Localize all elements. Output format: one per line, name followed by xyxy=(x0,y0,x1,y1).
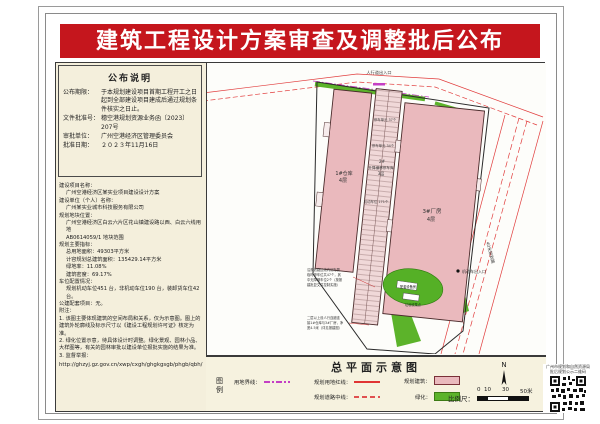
facility-2-label: 垃圾收集点 xyxy=(405,302,422,307)
compass-needle-icon xyxy=(499,369,509,387)
scale-label: 比例尺： xyxy=(448,393,474,403)
annotation-b-line1: 二层以上设人行连廊连 xyxy=(307,315,341,320)
qr-code-icon xyxy=(549,375,587,413)
info-location-value1: 广州空港经济区白云六片区花山镇建设路以西、白云六线用地 xyxy=(59,220,204,235)
info-public-label: 公建配套项目：无。 xyxy=(59,301,204,308)
notice-box: 公布说明 公布期限： 于本规划建设项目首期工程开工之日起到全部建设项目建成后通过… xyxy=(58,65,202,177)
info-ind4: 建筑密度：69.17% xyxy=(59,272,204,279)
content-area: 公布说明 公布期限： 于本规划建设项目首期工程开工之日起到全部建设项目建成后通过… xyxy=(55,62,545,412)
pedestrian-entrance-marker xyxy=(373,83,385,86)
annotation-a-line2: 临时停车位共47个，其 xyxy=(307,272,342,277)
notice-item-value: ２０２３年11月16日 xyxy=(101,142,197,150)
legend-item-boundary-label: 用地界线： xyxy=(234,378,261,386)
annotation-b-line3: 宽4.5米（详见报建图） xyxy=(307,325,342,330)
supervision-url: http://ghzyj.gz.gov.cn/xwp/cxgh/ghgkgsgb… xyxy=(59,362,204,370)
info-parking-value: 规划机动车位451 台，非机动车位190 台，装卸货车位42 台。 xyxy=(59,286,204,301)
notice-item-value: 穗空港规划资源业务函〔2023〕207号 xyxy=(101,115,197,132)
building-2-label: 升降横移停车库 xyxy=(368,165,394,170)
legend-item-green-label: 绿化： xyxy=(415,393,431,401)
legend-item-roadcenter: 规划道路中线： xyxy=(314,393,380,401)
north-letter: N xyxy=(494,361,514,369)
legend-key-char1: 图 xyxy=(216,377,223,386)
building-1-floors: 4层 xyxy=(339,178,347,184)
info-name-value: 广州空港经济区某实业项目建设设计方案 xyxy=(59,190,204,197)
site-plan-map: 配套设备房 垃圾收集点 人行道出入口 机动车出入口 1#仓库 4层 2# 升降横… xyxy=(206,63,546,356)
notice-item-value: 广州空港经济区管理委员会 xyxy=(101,133,197,141)
vehicle-entrance-marker xyxy=(456,269,459,272)
info-ind1: 总用地面积：49303平方米 xyxy=(59,249,204,256)
legend-item-roadcenter-label: 规划道路中线： xyxy=(314,393,351,401)
scale-tick-10: 10 xyxy=(484,387,491,393)
parking-count-1: 停车单元 37个 xyxy=(374,117,397,122)
legend-key-label: 图 例 xyxy=(216,377,223,395)
parking-count-2: 停车单元 34个 xyxy=(372,143,395,148)
page-title: 建筑工程设计方案审查及调整批后公布 xyxy=(60,24,540,58)
site-plan-svg: 配套设备房 垃圾收集点 人行道出入口 机动车出入口 1#仓库 4层 2# 升降横… xyxy=(207,63,545,354)
boundary-line-swatch xyxy=(264,381,290,383)
legend-key-char2: 例 xyxy=(216,386,223,395)
scale-tick-50: 50米 xyxy=(520,387,533,395)
stair-core xyxy=(395,140,401,152)
annotation-a-line3: 中无障碍车位2个（按报 xyxy=(307,277,343,282)
info-note3: 3. 监督举报： xyxy=(59,353,204,360)
qr-block: 广州市规划和自然资源局 批后规划公示二维码 xyxy=(543,364,593,413)
scale-segments xyxy=(477,396,529,401)
info-note1: 1. 该图主要体现建筑的空间布局和关系，仅为示意图。图上的建筑外轮廓线及标示尺寸… xyxy=(59,316,204,338)
building-2-floors: 3层 xyxy=(378,170,385,176)
qr-caption-line2: 批后规划公示二维码 xyxy=(543,369,593,374)
facility-1-label: 配套设备房 xyxy=(400,284,416,289)
pedestrian-entrance-label: 人行道出入口 xyxy=(366,69,391,76)
annotation-b-line2: 接1#仓库与3#厂房，净 xyxy=(307,320,344,325)
vehicle-entrance-label: 机动车出入口 xyxy=(462,268,486,274)
legend-item-boundary: 用地界线： xyxy=(234,378,290,386)
scale-bar: 比例尺： 0 10 30 50米 xyxy=(448,387,533,403)
info-location-value2: AB0614059/1 地块范围 xyxy=(59,235,204,242)
building-3-floors: 4层 xyxy=(427,217,435,223)
building-swatch xyxy=(434,376,460,385)
annotation-a-line4: 建批复文件控制实施） xyxy=(307,282,340,287)
project-info: 建设项目名称： 广州空港经济区某实业项目建设设计方案 建设单位（个人）名称： 广… xyxy=(59,183,204,370)
notice-heading: 公布说明 xyxy=(63,71,197,84)
redline-swatch xyxy=(354,381,380,383)
notice-item: 文件批准号： 穗空港规划资源业务函〔2023〕207号 xyxy=(63,115,197,132)
scale-tick-0: 0 xyxy=(477,387,481,393)
notice-item-label: 公布期限： xyxy=(63,89,101,114)
annotation-a-line1: 沿规划路边线内侧布置 xyxy=(307,267,341,272)
info-location-label: 规划地块位置： xyxy=(59,213,204,220)
info-unit-value: 广州某实业城市科技服务有限公司 xyxy=(59,205,204,212)
building-3-label: 3#厂房 xyxy=(422,207,442,215)
building-2-number: 2# xyxy=(379,159,386,164)
legend-item-building: 规划建筑： xyxy=(404,376,460,385)
legend-item-redline: 规划用地红线： xyxy=(314,378,380,386)
info-ind3: 绿地率：11.08% xyxy=(59,264,204,271)
legend-item-redline-label: 规划用地红线： xyxy=(314,378,351,386)
notice-item: 审批单位： 广州空港经济区管理委员会 xyxy=(63,133,197,141)
scale-ruler: 0 10 30 50米 xyxy=(477,387,533,403)
building-1-label: 1#仓库 xyxy=(335,170,352,177)
legend-item-building-label: 规划建筑： xyxy=(404,377,431,385)
info-note2: 2. 绿化位置示意，待具体设计时调整。绿化景观、园林小品、大样图等，有关的园林审… xyxy=(59,338,204,353)
stair-core xyxy=(316,192,323,207)
stair-core xyxy=(386,220,392,232)
notice-item-label: 审批单位： xyxy=(63,133,101,141)
notice-item: 批准日期： ２０２３年11月16日 xyxy=(63,142,197,150)
notice-item-value: 于本规划建设项目首期工程开工之日起到全部建设项目建成后通过规划条件核实之日止。 xyxy=(101,89,197,114)
stair-core xyxy=(323,122,330,137)
notice-item: 公布期限： 于本规划建设项目首期工程开工之日起到全部建设项目建成后通过规划条件核… xyxy=(63,89,197,114)
notice-item-label: 批准日期： xyxy=(63,142,101,150)
scale-tick-30: 30 xyxy=(502,387,509,393)
legend-panel: 总平面示意图 图 例 用地界线： 规划用地红线： 规划道路中线： 规划建筑： 绿… xyxy=(206,356,546,411)
info-notes-label: 附注： xyxy=(59,308,204,315)
parking-count-3: 机动车位 171个 xyxy=(364,199,389,204)
road-centerline-swatch xyxy=(354,396,380,398)
notice-item-label: 文件批准号： xyxy=(63,115,101,132)
